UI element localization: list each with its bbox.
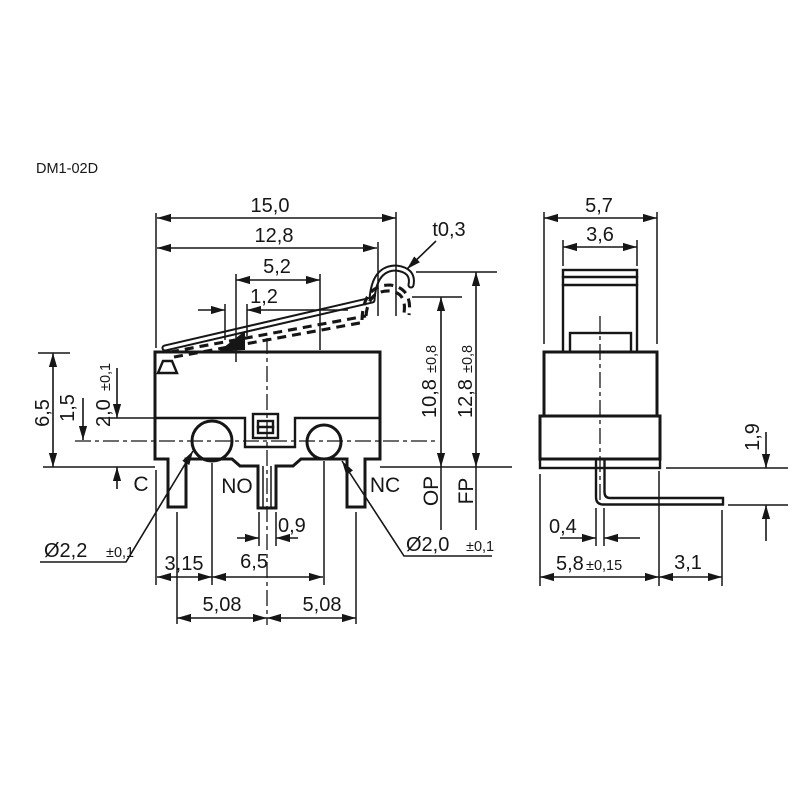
front-left-dimensions: 6,5 1,5 2,0 ±0,1 <box>32 353 155 489</box>
dim-hole-spacing: 6,5 <box>240 551 268 573</box>
label-operating-position: OP <box>420 476 443 506</box>
dim-terminal-thickness: 0,9 <box>278 515 306 537</box>
contact-block <box>253 414 278 438</box>
dim-terminal-drop: 1,9 <box>742 423 764 451</box>
label-normally-open: NO <box>221 475 253 498</box>
dim-hole-right-diameter: Ø2,0 <box>406 534 449 556</box>
dim-fp-height-tol: ±0,8 <box>460 345 476 373</box>
dim-step-height: 2,0 <box>93 399 115 427</box>
dim-body-height: 6,5 <box>32 399 54 427</box>
label-common: C <box>133 473 148 496</box>
side-view-body <box>540 270 723 505</box>
label-normally-closed: NC <box>370 474 400 497</box>
dim-body-width: 5,7 <box>585 195 613 217</box>
dim-centerline-height: 1,5 <box>57 394 79 422</box>
dim-hole-right-diameter-tol: ±0,1 <box>466 539 494 555</box>
mounting-hole-right <box>307 425 341 459</box>
dim-step-height-tol: ±0,1 <box>98 363 114 391</box>
dim-side-terminal-thickness: 0,4 <box>549 516 577 538</box>
dim-terminal-extension: 3,1 <box>674 552 702 574</box>
drawing-canvas: DM1-02D <box>0 0 800 800</box>
dim-lever-mid: 5,2 <box>263 256 291 278</box>
dim-hole-left-diameter-tol: ±0,1 <box>106 545 134 561</box>
vent-hole <box>158 361 177 373</box>
dim-fp-height: 12,8 <box>455 379 477 418</box>
dim-overall-length: 15,0 <box>251 195 290 217</box>
dim-body-depth-tol: ±0,15 <box>586 558 622 574</box>
dim-op-height: 10,8 <box>419 379 441 418</box>
drawing-title: DM1-02D <box>36 161 98 177</box>
dim-lever-width: 3,6 <box>586 224 614 246</box>
micro-switch-dimension-drawing: DM1-02D <box>0 0 800 800</box>
dim-terminal-pitch-right: 5,08 <box>303 594 342 616</box>
dim-hole-left-diameter: Ø2,2 <box>44 540 87 562</box>
label-free-position: FP <box>455 478 478 505</box>
dim-terminal-pitch-left: 5,08 <box>203 594 242 616</box>
dim-hole-offset: 3,15 <box>165 553 204 575</box>
dim-lever-free-length: 12,8 <box>255 225 294 247</box>
dim-hinge-width: 1,2 <box>250 286 278 308</box>
dim-body-depth: 5,8 <box>556 553 584 575</box>
dim-lever-thickness: t0,3 <box>432 219 465 241</box>
dim-op-height-tol: ±0,8 <box>424 345 440 373</box>
